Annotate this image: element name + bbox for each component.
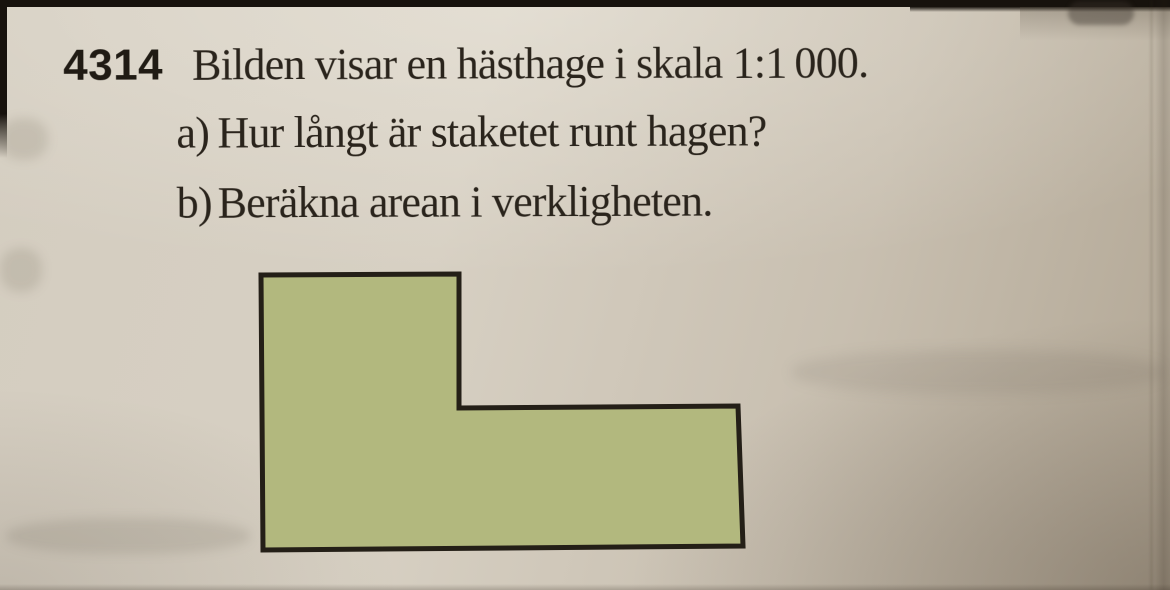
paddock-polygon: [261, 274, 743, 550]
paddock-figure: [0, 0, 1170, 590]
textbook-page-photo: 4314 Bilden visar en hästhage i skala 1:…: [0, 0, 1170, 590]
